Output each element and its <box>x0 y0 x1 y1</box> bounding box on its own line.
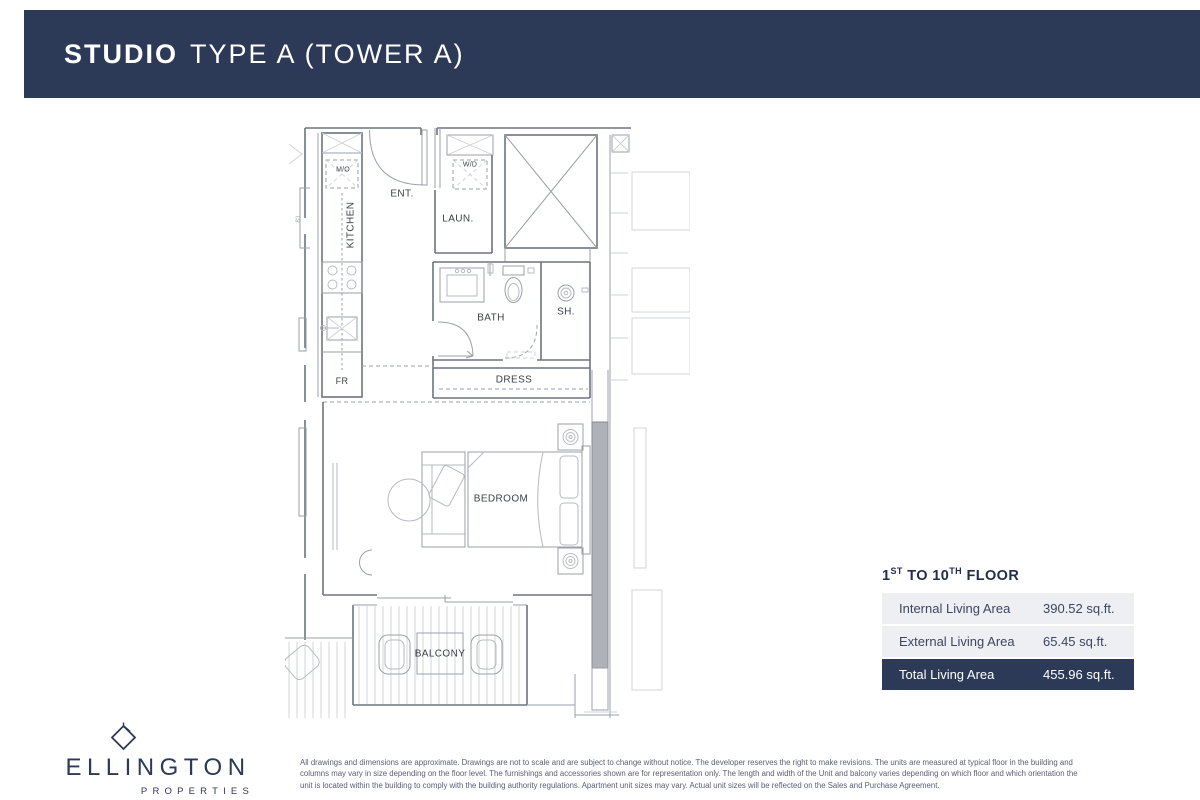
corridor-wall <box>610 135 629 718</box>
table-row-external: External Living Area 65.45 sq.ft. <box>882 626 1134 657</box>
room-label-laun: LAUN. <box>442 214 473 225</box>
room-label-bedroom: BEDROOM <box>474 494 528 505</box>
ellington-diamond-icon <box>110 722 137 752</box>
area-table: 1ST TO 10TH FLOOR Internal Living Area 3… <box>882 566 1134 690</box>
floor-heading: 1ST TO 10TH FLOOR <box>882 566 1134 584</box>
row-label: Internal Living Area <box>882 601 1043 616</box>
row-label: Total Living Area <box>882 667 1043 682</box>
room-label-ent: ENT. <box>390 189 413 200</box>
page-title-rest: TYPE A (TOWER A) <box>190 39 465 69</box>
entry-door <box>370 128 438 185</box>
page-title: STUDIOTYPE A (TOWER A) <box>64 10 465 98</box>
room-label-dress: DRESS <box>496 375 532 386</box>
dimension-label: 8'L <box>296 213 302 222</box>
brand-logo: ELLINGTON PROPERTIES <box>62 722 254 797</box>
table-row-total: Total Living Area 455.96 sq.ft. <box>882 659 1134 690</box>
row-value: 455.96 sq.ft. <box>1043 667 1115 682</box>
header-bar: STUDIOTYPE A (TOWER A) <box>24 10 1200 98</box>
room-label-kitchen: KITCHEN <box>346 202 357 249</box>
disclaimer-text: All drawings and dimensions are approxim… <box>300 757 1092 791</box>
neighbor-unit-fragments <box>632 172 690 690</box>
bedroom-area <box>323 366 593 602</box>
balcony-area <box>353 605 619 718</box>
floor-heading-sup1: ST <box>890 566 902 576</box>
floor-plan: M/O KITCHEN ENT. W/D LAUN. BATH SH. DRES… <box>285 118 690 722</box>
floor-heading-mid: TO 10 <box>903 568 949 584</box>
room-label-bath: BATH <box>477 313 505 324</box>
room-label-mo: M/O <box>336 167 350 174</box>
room-label-fr: FR <box>336 376 349 386</box>
shaft <box>505 135 597 262</box>
row-value: 390.52 sq.ft. <box>1043 601 1115 616</box>
neighbor-balcony <box>285 638 353 718</box>
party-wall <box>584 370 617 712</box>
row-label: External Living Area <box>882 634 1043 649</box>
row-value: 65.45 sq.ft. <box>1043 634 1107 649</box>
floor-heading-sup2: TH <box>949 566 962 576</box>
room-label-wd: W/D <box>463 162 477 169</box>
brand-subtitle: PROPERTIES <box>62 786 254 797</box>
brand-name: ELLINGTON <box>62 754 254 782</box>
room-label-balcony: BALCONY <box>415 649 466 660</box>
floor-heading-end: FLOOR <box>962 568 1019 584</box>
table-row-internal: Internal Living Area 390.52 sq.ft. <box>882 593 1134 624</box>
room-label-sh: SH. <box>557 307 575 318</box>
laundry-area <box>435 128 493 253</box>
page-title-bold: STUDIO <box>64 39 178 69</box>
